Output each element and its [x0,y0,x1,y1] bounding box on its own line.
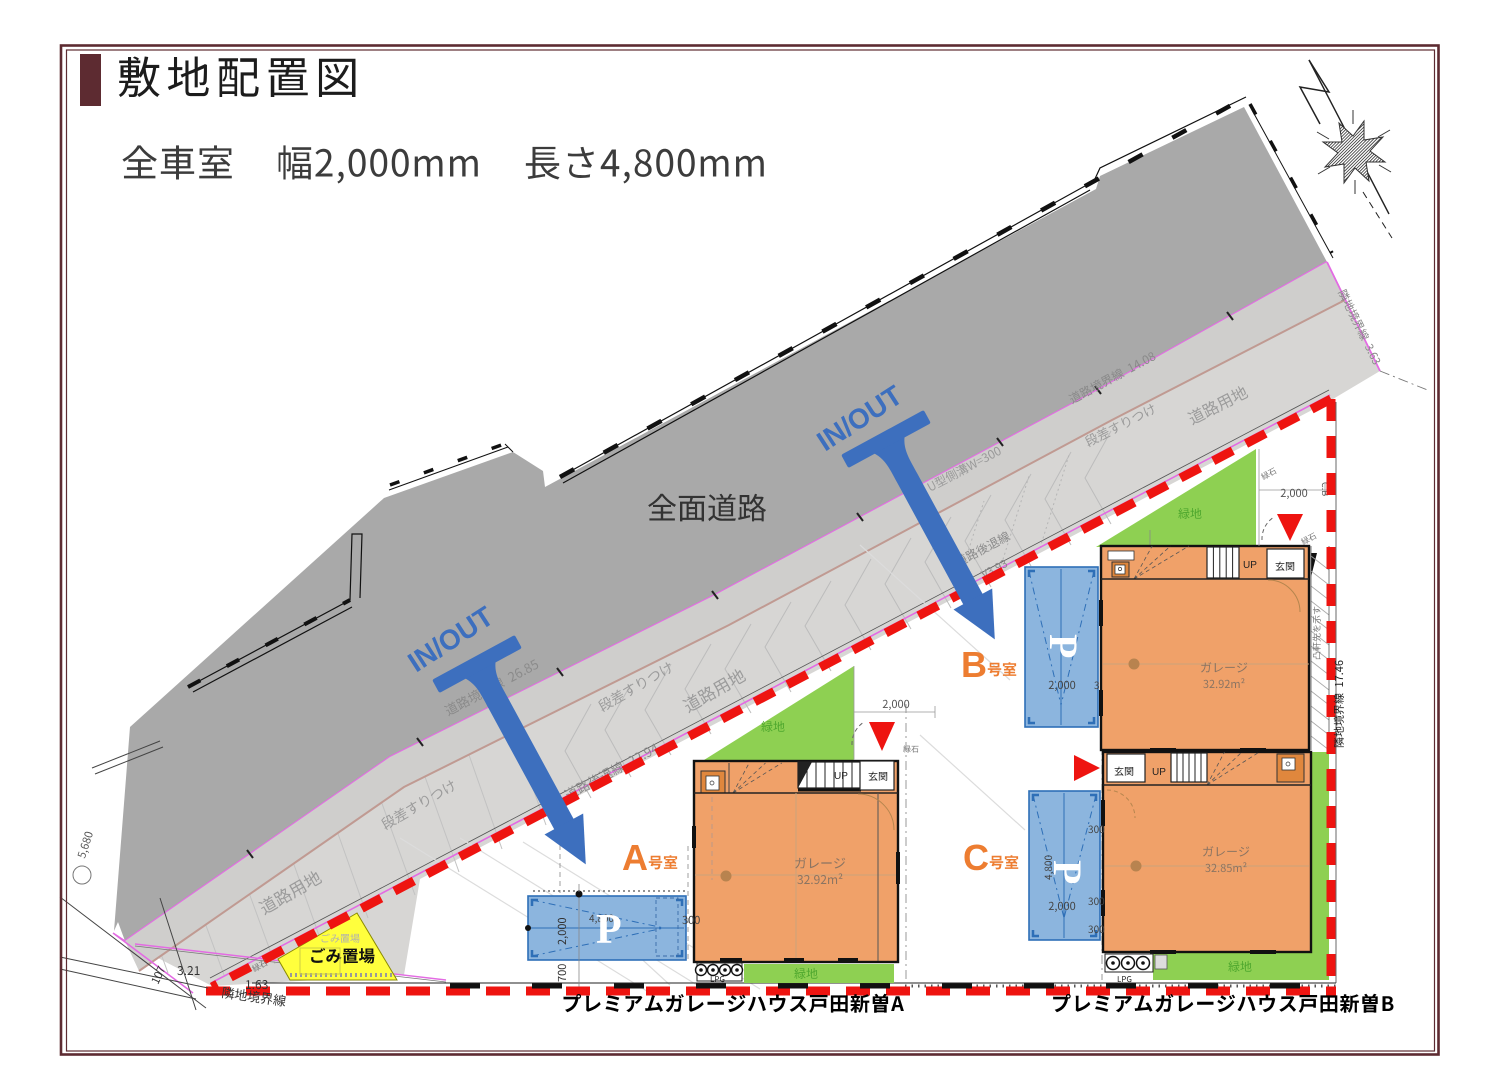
svg-text:P: P [1041,634,1086,658]
svg-text:UP: UP [834,771,848,782]
svg-text:P: P [596,907,622,953]
svg-text:C: C [963,837,989,878]
svg-text:B: B [961,644,987,685]
svg-text:UP: UP [1243,560,1257,571]
svg-text:A: A [622,837,648,878]
svg-text:UP: UP [1152,767,1166,778]
